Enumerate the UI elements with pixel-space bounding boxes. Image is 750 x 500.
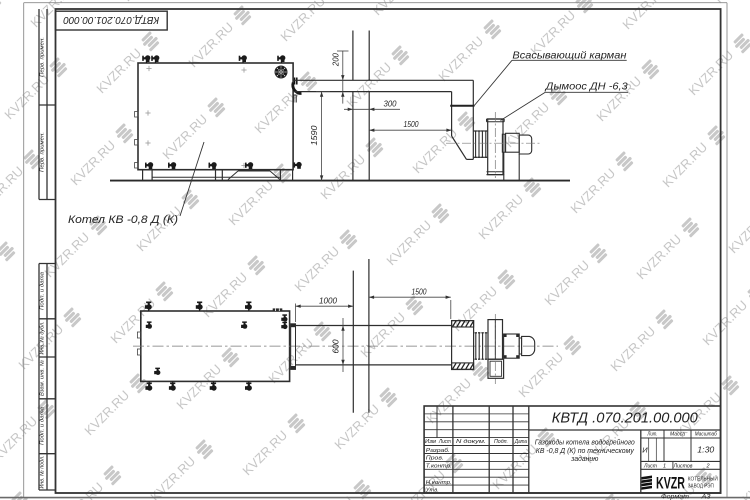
svg-text:Н.контр.: Н.контр. (426, 480, 452, 486)
svg-text:KVZR.RU: KVZR.RU (119, 0, 170, 4)
svg-text:Инв. № подл.: Инв. № подл. (40, 456, 46, 489)
svg-text:Т.контр.: Т.контр. (426, 464, 452, 470)
svg-text:KVZR.RU: KVZR.RU (225, 177, 276, 228)
svg-text:ЗАВОД РЭП: ЗАВОД РЭП (688, 484, 714, 490)
svg-text:Взам. инв. №: Взам. инв. № (40, 360, 46, 396)
svg-text:KVZR.RU: KVZR.RU (0, 163, 26, 214)
svg-text:Перв. примен.: Перв. примен. (40, 37, 46, 77)
svg-text:Лист: Лист (643, 464, 657, 470)
svg-text:Масштаб: Масштаб (695, 432, 718, 438)
svg-text:KVZR.RU: KVZR.RU (357, 309, 408, 360)
svg-text:Подп. и дата: Подп. и дата (40, 272, 46, 310)
svg-text:КВТД .070.201.00.000: КВТД .070.201.00.000 (552, 410, 699, 427)
svg-text:KVZR.RU: KVZR.RU (199, 269, 250, 320)
svg-text:1500: 1500 (412, 287, 427, 296)
svg-text:300: 300 (384, 100, 398, 109)
svg-text:KVZR.RU: KVZR.RU (515, 349, 566, 400)
svg-text:Лист: Лист (438, 439, 452, 445)
svg-text:KVZR.RU: KVZR.RU (239, 427, 290, 478)
svg-text:KVZR.RU: KVZR.RU (739, 455, 750, 500)
svg-text:Утв.: Утв. (425, 487, 439, 493)
svg-text:KVZR.RU: KVZR.RU (633, 231, 684, 282)
svg-text:KVZR.RU: KVZR.RU (81, 387, 132, 438)
svg-text:2: 2 (705, 464, 709, 470)
svg-text:KVZR.RU: KVZR.RU (251, 85, 302, 136)
svg-text:Дымоос ДН -6,3: Дымоос ДН -6,3 (545, 81, 628, 93)
svg-text:KVZR.RU: KVZR.RU (659, 139, 710, 190)
svg-text:KVZR.RU: KVZR.RU (41, 229, 92, 280)
svg-text:KVZR.RU: KVZR.RU (699, 297, 750, 348)
svg-text:KVZR.RU: KVZR.RU (277, 0, 328, 44)
svg-text:Подп. и дата: Подп. и дата (40, 407, 46, 445)
svg-text:KVZR.RU: KVZR.RU (331, 401, 382, 452)
svg-text:Газоходы котела водогрейного: Газоходы котела водогрейного (535, 439, 635, 447)
svg-text:KVZR.RU: KVZR.RU (291, 243, 342, 294)
svg-text:Всасывающий карман: Всасывающий карман (512, 50, 626, 62)
svg-text:Масса: Масса (670, 432, 685, 438)
svg-text:KVZR.RU: KVZR.RU (619, 0, 670, 32)
svg-text:Подп.: Подп. (494, 439, 508, 445)
svg-text:KVZR.RU: KVZR.RU (317, 151, 368, 202)
svg-text:KVZR.RU: KVZR.RU (173, 361, 224, 412)
svg-text:KVZR.RU: KVZR.RU (423, 375, 474, 426)
svg-text:KVZR.RU: KVZR.RU (435, 33, 486, 84)
svg-text:600: 600 (331, 339, 340, 354)
svg-text:заданию: заданию (570, 455, 599, 463)
svg-text:Инв. № дубл.: Инв. № дубл. (40, 322, 46, 355)
svg-text:Лит.: Лит. (647, 432, 658, 438)
svg-text:KVZR.RU: KVZR.RU (475, 191, 526, 242)
svg-text:А3: А3 (700, 494, 711, 500)
svg-text:KVZR.RU: KVZR.RU (725, 205, 750, 256)
svg-text:KVZR: KVZR (656, 474, 685, 493)
svg-text:KVZR.RU: KVZR.RU (1, 71, 52, 122)
svg-text:KVZR.RU: KVZR.RU (0, 413, 40, 464)
svg-text:KVZR.RU: KVZR.RU (685, 47, 736, 98)
svg-text:Пров.: Пров. (426, 456, 444, 462)
svg-text:1590: 1590 (310, 125, 319, 146)
svg-text:N докум.: N докум. (456, 439, 486, 445)
svg-text:KVZR.RU: KVZR.RU (409, 125, 460, 176)
svg-text:KVZR.RU: KVZR.RU (567, 165, 618, 216)
svg-text:KVZR.RU: KVZR.RU (159, 111, 210, 162)
svg-text:1:30: 1:30 (697, 446, 715, 455)
svg-text:Котел КВ -0,8 Д (К): Котел КВ -0,8 Д (К) (68, 214, 178, 226)
svg-text:1000: 1000 (319, 296, 338, 305)
svg-text:KVZR.RU: KVZR.RU (383, 217, 434, 268)
svg-text:Перв. примен.: Перв. примен. (40, 132, 46, 172)
svg-text:Изм: Изм (425, 439, 437, 445)
svg-text:1500: 1500 (404, 120, 419, 129)
svg-text:1: 1 (663, 464, 666, 470)
svg-text:КВ -0,8 Д (К) по техническому: КВ -0,8 Д (К) по техническому (536, 448, 634, 455)
svg-text:Формат: Формат (661, 494, 689, 500)
svg-text:KVZR.RU: KVZR.RU (501, 99, 552, 150)
svg-text:KVZR.RU: KVZR.RU (93, 45, 144, 96)
svg-text:Дата: Дата (514, 439, 527, 445)
svg-text:KVZR.RU: KVZR.RU (305, 493, 356, 500)
svg-text:И: И (642, 446, 648, 455)
svg-text:КВТД.070.201.00.000: КВТД.070.201.00.000 (63, 14, 159, 26)
svg-text:200: 200 (332, 53, 341, 67)
svg-text:КОТЕЛЬНЫЙ: КОТЕЛЬНЫЙ (688, 475, 718, 483)
svg-text:Листов: Листов (673, 464, 693, 470)
svg-text:Разраб.: Разраб. (426, 448, 450, 454)
svg-text:KVZR.RU: KVZR.RU (133, 203, 184, 254)
svg-text:KVZR.RU: KVZR.RU (541, 257, 592, 308)
svg-text:KVZR.RU: KVZR.RU (607, 323, 658, 374)
